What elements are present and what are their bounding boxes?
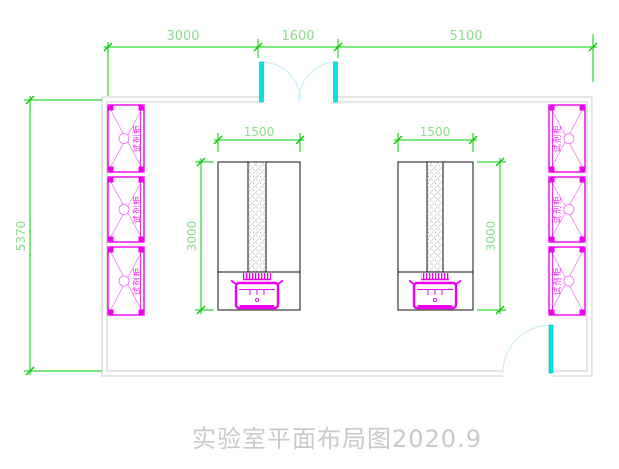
bench-service-column-hatch — [427, 162, 443, 272]
cabinet-post — [580, 178, 585, 183]
top-door-opening — [260, 94, 337, 104]
cabinet-post — [550, 178, 555, 183]
lab-bench-left — [218, 162, 300, 310]
dim-label-right-bench-length: 3000 — [484, 221, 498, 252]
cabinet-post — [109, 106, 114, 111]
cabinet-post — [139, 248, 144, 253]
dim-label-right-bench-width: 1500 — [420, 125, 451, 139]
cabinet-post — [139, 237, 144, 242]
cabinet-post — [550, 106, 555, 111]
cabinet-label: 试剂柜 — [552, 195, 563, 224]
dim-label-left-bench-width: 1500 — [244, 125, 275, 139]
cabinet-knob-circle — [119, 134, 129, 144]
drawing-title: 实验室平面布局图2020.9 — [192, 425, 482, 453]
sink-comb — [243, 273, 271, 279]
dim-label-left-wall: 5370 — [14, 221, 28, 252]
cabinet-label: 试剂柜 — [132, 195, 143, 224]
door-leaf-right — [334, 62, 338, 102]
dim-label-top-middle: 1600 — [281, 29, 314, 44]
cabinet-label: 试剂柜 — [132, 124, 143, 153]
cabinet-post — [550, 248, 555, 253]
floorplan-canvas: 试剂柜 试剂柜 试剂柜 — [0, 0, 619, 469]
dim-right-bench-length: 3000 — [477, 158, 506, 314]
cabinet-post — [550, 167, 555, 172]
lab-bench-right — [398, 162, 473, 310]
dim-label-left-bench-length: 3000 — [185, 221, 199, 252]
cabinet-post — [580, 310, 585, 315]
dim-label-top-right: 5100 — [449, 29, 482, 44]
cabinet-knob-circle — [119, 205, 129, 215]
dimensions: 3000 1600 5100 5370 1500 — [14, 29, 597, 375]
cabinet-box: 试剂柜 — [549, 105, 585, 172]
cabinet-post — [139, 106, 144, 111]
cabinet-post — [580, 237, 585, 242]
cabinet-knob-circle — [119, 276, 129, 286]
cabinet-label: 试剂柜 — [552, 124, 563, 153]
room-walls — [102, 94, 592, 378]
wall-inner-line — [107, 102, 587, 371]
dim-left-bench-length: 3000 — [185, 158, 214, 314]
cabinet-box: 试剂柜 — [549, 247, 585, 315]
door-leaf-bottom — [549, 325, 553, 373]
cabinet-post — [580, 167, 585, 172]
cabinet-post — [139, 310, 144, 315]
cabinet-knob-circle — [564, 205, 574, 215]
dim-right-bench-width: 1500 — [394, 125, 477, 152]
dim-left-bench-width: 1500 — [214, 125, 304, 152]
reagent-cabinets-left: 试剂柜 试剂柜 试剂柜 — [108, 105, 144, 315]
cabinet-post — [109, 178, 114, 183]
cabinet-knob-circle — [564, 276, 574, 286]
cabinet-post — [139, 167, 144, 172]
sink-comb — [421, 273, 449, 279]
dim-label-top-left: 3000 — [166, 29, 199, 44]
cabinet-post — [109, 167, 114, 172]
cabinet-post — [550, 237, 555, 242]
cabinet-post — [109, 237, 114, 242]
door-leaf-left — [260, 62, 264, 102]
reagent-cabinets-right: 试剂柜 试剂柜 试剂柜 — [549, 105, 585, 315]
cabinet-box: 试剂柜 — [108, 105, 144, 172]
cabinet-box: 试剂柜 — [549, 177, 585, 242]
cabinet-post — [550, 310, 555, 315]
wall-outer-line — [102, 97, 592, 376]
dim-top-chain: 3000 1600 5100 — [104, 29, 597, 96]
cabinet-box: 试剂柜 — [108, 177, 144, 242]
cabinet-label: 试剂柜 — [132, 267, 143, 296]
bottom-door-opening — [503, 360, 551, 378]
cabinet-post — [139, 178, 144, 183]
cabinet-post — [580, 106, 585, 111]
cabinet-post — [109, 248, 114, 253]
cabinet-label: 试剂柜 — [552, 267, 563, 296]
floorplan-drawing: 试剂柜 试剂柜 试剂柜 — [0, 0, 619, 469]
cabinet-post — [580, 248, 585, 253]
bench-service-column-hatch — [248, 162, 266, 272]
cabinet-box: 试剂柜 — [108, 247, 144, 315]
dim-left-wall: 5370 — [14, 96, 102, 375]
cabinet-knob-circle — [564, 134, 574, 144]
cabinet-post — [109, 310, 114, 315]
